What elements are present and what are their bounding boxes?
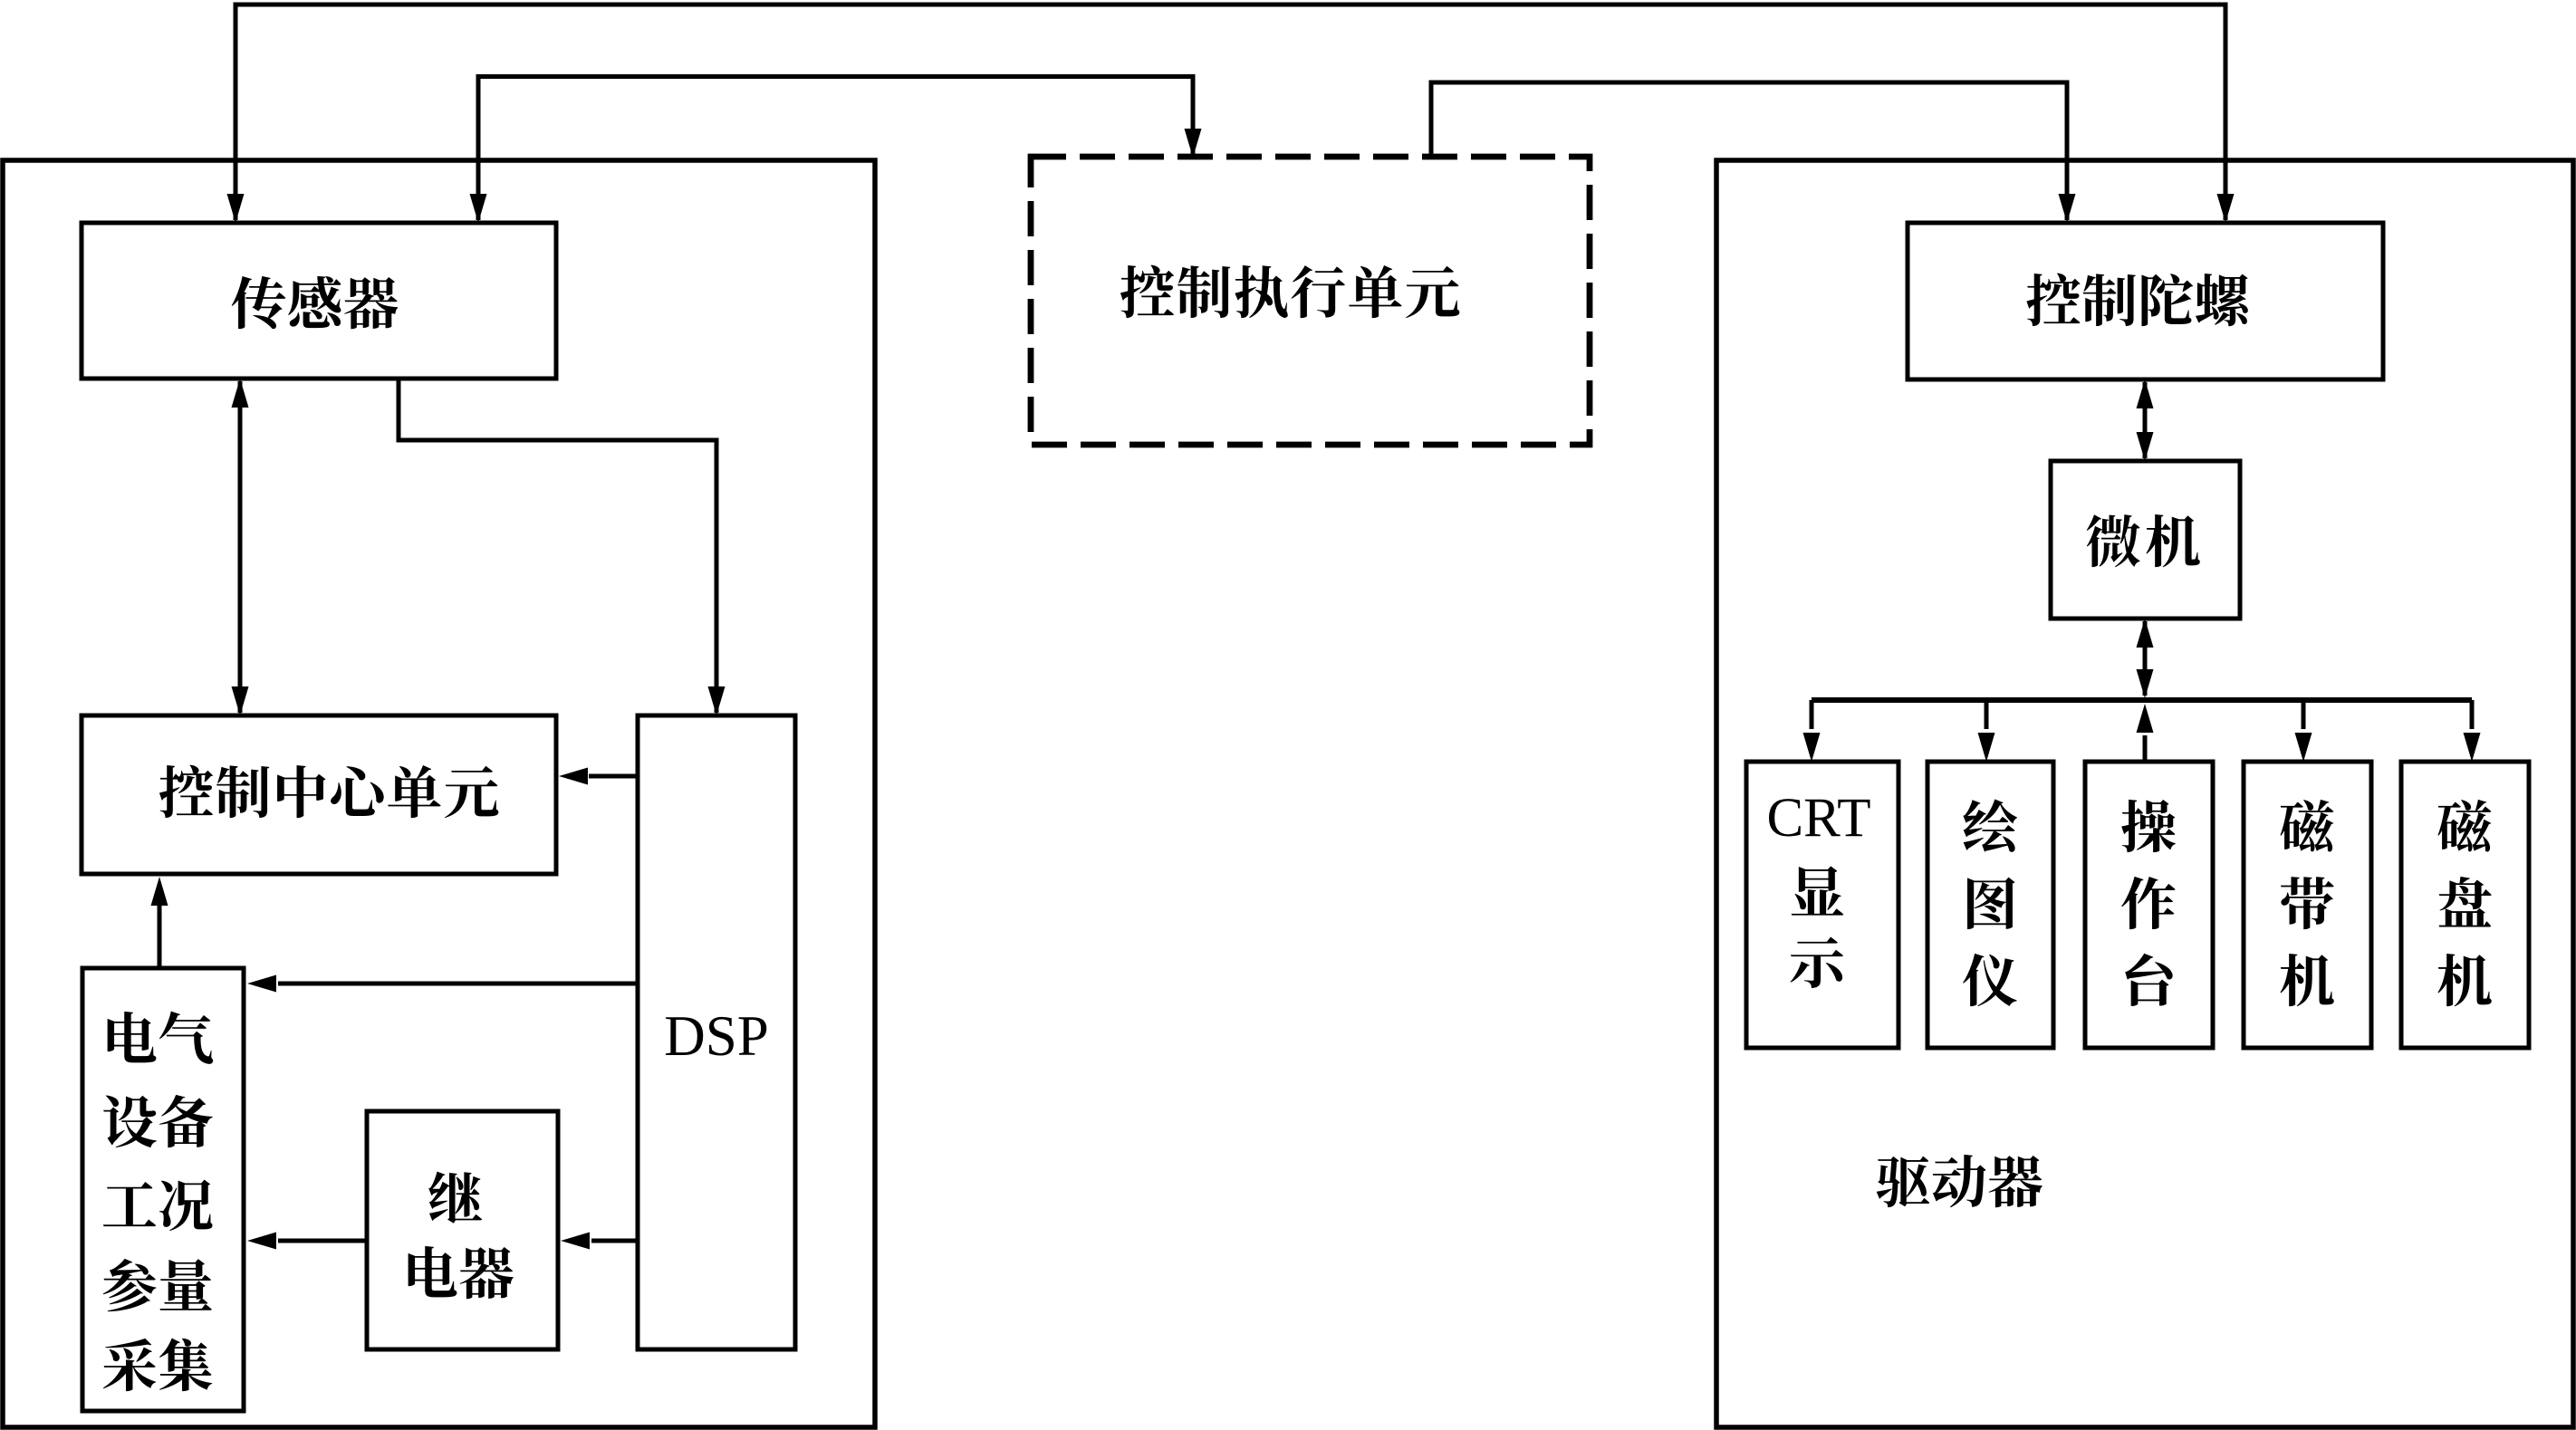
svg-text:CRT: CRT xyxy=(1767,788,1871,849)
svg-text:DSP: DSP xyxy=(664,1004,769,1068)
